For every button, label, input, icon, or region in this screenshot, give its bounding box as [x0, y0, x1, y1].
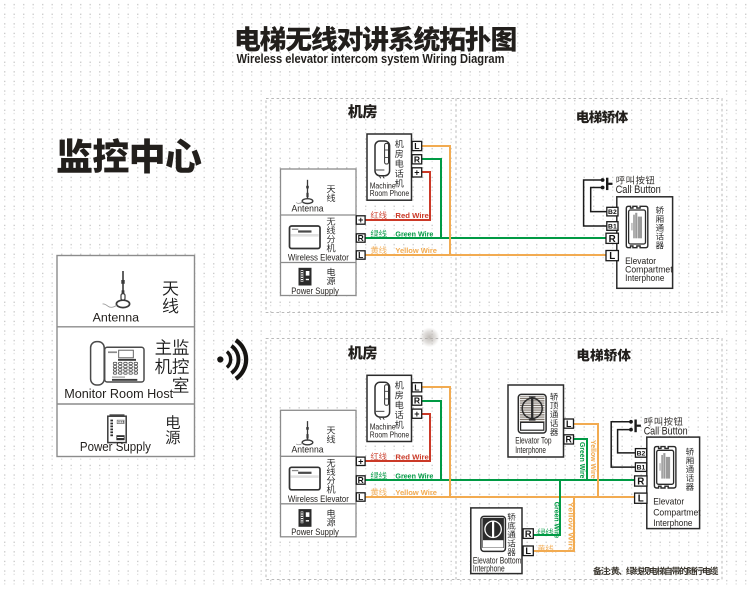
svg-text:L: L	[638, 494, 644, 505]
svg-text:Yellow Wire: Yellow Wire	[589, 440, 598, 479]
svg-text:Elevator: Elevator	[653, 497, 684, 508]
svg-text:B2: B2	[608, 209, 617, 216]
svg-text:Antenna: Antenna	[93, 313, 140, 325]
svg-text:L: L	[566, 419, 572, 429]
svg-text:L: L	[525, 546, 531, 556]
svg-text:Room Phone: Room Phone	[370, 188, 410, 198]
svg-text:Monitor Room Host: Monitor Room Host	[64, 386, 173, 401]
svg-text:L: L	[414, 382, 419, 392]
svg-text:Wireless Elevator: Wireless Elevator	[288, 494, 349, 505]
svg-text:Yellow Wire: Yellow Wire	[395, 246, 437, 255]
svg-text:Compartmet: Compartmet	[653, 507, 701, 518]
svg-text:Antenna: Antenna	[292, 203, 325, 213]
svg-text:Green Wire: Green Wire	[395, 472, 433, 481]
svg-text:Antenna: Antenna	[292, 445, 325, 455]
svg-text:+: +	[414, 409, 419, 419]
svg-text:Room Phone: Room Phone	[370, 430, 410, 440]
svg-text:Green Wire: Green Wire	[578, 442, 587, 479]
svg-text:Call Button: Call Button	[644, 426, 688, 438]
svg-text:Yellow Wire: Yellow Wire	[567, 502, 576, 552]
svg-text:B2: B2	[637, 450, 646, 457]
svg-text:B1: B1	[637, 465, 646, 472]
svg-text:Red Wire: Red Wire	[395, 452, 428, 461]
svg-text:Interphone: Interphone	[473, 563, 505, 574]
svg-text:Wireless Elevator: Wireless Elevator	[288, 253, 349, 264]
svg-text:Interphone: Interphone	[625, 273, 664, 284]
svg-text:L: L	[414, 141, 419, 151]
svg-text:Wireless elevator intercom sys: Wireless elevator intercom system Wiring…	[237, 52, 505, 66]
svg-text:L: L	[358, 492, 363, 502]
svg-text:Power Supply: Power Supply	[291, 527, 339, 538]
svg-text:R: R	[358, 233, 364, 243]
svg-text:L: L	[609, 251, 615, 262]
svg-text:R: R	[609, 234, 616, 245]
svg-text:Interphone: Interphone	[653, 518, 692, 529]
svg-text:Red Wire: Red Wire	[395, 211, 428, 220]
svg-text:R: R	[414, 396, 420, 406]
svg-text:Green Wire: Green Wire	[552, 502, 561, 539]
svg-text:R: R	[637, 477, 644, 488]
svg-text:Call Button: Call Button	[616, 184, 661, 196]
svg-text:R: R	[358, 475, 364, 485]
svg-text:R: R	[414, 154, 420, 164]
svg-text:Yellow Wire: Yellow Wire	[395, 488, 437, 497]
svg-text:+: +	[358, 215, 363, 225]
svg-text:Interphone: Interphone	[515, 445, 546, 456]
svg-text:+: +	[358, 457, 363, 467]
svg-text:Power Supply: Power Supply	[291, 286, 339, 297]
svg-text:R: R	[525, 529, 532, 539]
svg-text:+: +	[414, 168, 419, 178]
svg-text:R: R	[566, 435, 573, 445]
svg-text:Green Wire: Green Wire	[395, 230, 433, 239]
svg-text:B1: B1	[608, 223, 617, 230]
svg-text:L: L	[358, 250, 363, 260]
svg-text:Power Supply: Power Supply	[80, 440, 152, 454]
